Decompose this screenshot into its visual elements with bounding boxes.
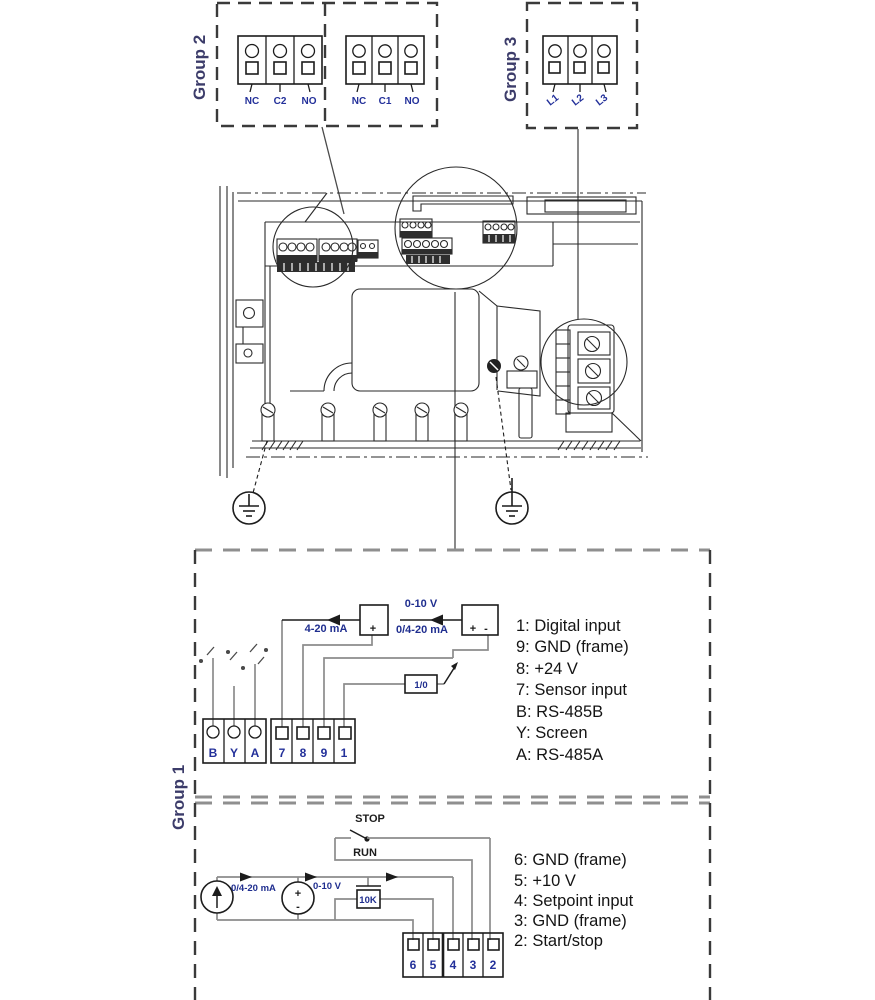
legend-item: 5: +10 V (514, 872, 576, 890)
stop-label: STOP (355, 813, 385, 825)
combo-range-label: 0/4-20 mA (396, 624, 448, 636)
legend-item: B: RS-485B (516, 703, 603, 721)
wiring-diagram: Group 2 NC C2 NO NC C1 NO Group 3 (0, 0, 875, 1000)
wiring-diagram-page: Group 2 NC C2 NO NC C1 NO Group 3 (0, 0, 875, 1000)
up-arrow-icon (212, 886, 222, 896)
terminal-9: 9 (321, 746, 328, 760)
relay-b-terminal-c1: C1 (379, 96, 392, 107)
relay-block-b: NC C1 NO (346, 36, 424, 107)
terminal-b: B (209, 746, 218, 760)
group3-label: Group 3 (501, 37, 520, 102)
plus-sign: + (295, 888, 301, 900)
mains-terminal-l1: L1 (545, 92, 561, 108)
potentiometer-symbol: 10K (356, 886, 381, 908)
terminal-7: 7 (279, 746, 286, 760)
relay-a-terminal-no: NO (302, 96, 317, 107)
relay-b-terminal-no: NO (405, 96, 420, 107)
mains-terminal-l2: L2 (570, 92, 586, 108)
bus-continuation-marks (200, 644, 268, 669)
legend-item: 3: GND (frame) (514, 912, 627, 930)
mains-terminal-l3: L3 (594, 92, 610, 108)
terminal-1: 1 (341, 746, 348, 760)
power-terminal-assembly (556, 325, 614, 432)
mains-block: L1 L2 L3 (543, 36, 617, 108)
legend-item: 7: Sensor input (516, 681, 627, 699)
relay-a-terminal-c2: C2 (274, 96, 287, 107)
highlight-circle-relays (273, 207, 353, 287)
terminal-8: 8 (300, 746, 307, 760)
arrow-right-icon (386, 873, 398, 882)
terminal-3: 3 (470, 958, 477, 972)
group2-label: Group 2 (190, 35, 209, 100)
current-signal-box: + 4-20 mA (282, 605, 388, 635)
terminal-strips (277, 219, 515, 272)
digital-input-switch: 1/0 (405, 662, 458, 693)
relay-a-terminal-nc: NC (245, 96, 259, 107)
terminal-6: 6 (410, 958, 417, 972)
legend-item: 4: Setpoint input (514, 892, 634, 910)
plus-sign: + (370, 623, 376, 635)
run-label: RUN (353, 847, 377, 859)
minus-sign: - (296, 901, 300, 913)
legend-lower: 6: GND (frame) 5: +10 V 4: Setpoint inpu… (514, 851, 634, 950)
ground-symbol-right (496, 377, 528, 524)
terminal-block-setpoint: 6 5 4 3 2 (403, 933, 503, 977)
legend-item: 2: Start/stop (514, 932, 603, 950)
terminal-block-io: 7 8 9 1 (271, 719, 355, 763)
ground-symbol-left (233, 441, 267, 524)
current-range-label: 0/4-20 mA (231, 883, 276, 894)
legend-item: 1: Digital input (516, 617, 621, 635)
legend-item: Y: Screen (516, 724, 588, 742)
terminal-5: 5 (430, 958, 437, 972)
group1-upper-box (195, 550, 710, 797)
group1-lower-content: STOP RUN (201, 813, 634, 977)
cable-glands (261, 403, 468, 441)
relay-block-a: NC C2 NO (238, 36, 322, 107)
legend-item: 6: GND (frame) (514, 851, 627, 869)
legend-item: 9: GND (frame) (516, 638, 629, 656)
switch-label: 1/0 (414, 680, 427, 691)
current-source-symbol: 0/4-20 mA (201, 881, 276, 913)
minus-sign: - (484, 623, 488, 635)
terminal-4: 4 (450, 958, 457, 972)
voltage-range-label: 0-10 V (313, 881, 342, 892)
pot-value-label: 10K (359, 895, 377, 906)
plus-sign: + (470, 623, 476, 635)
hatch-marks (262, 441, 620, 450)
terminal-block-comm: B Y A (203, 719, 266, 763)
voltage-source-symbol: + - 0-10 V (282, 881, 342, 914)
screws-and-glands (261, 356, 620, 450)
upper-wires (213, 620, 488, 727)
group1-label: Group 1 (169, 765, 188, 830)
switch-arrow-icon (451, 662, 458, 670)
enclosure-drawing (220, 167, 648, 478)
terminal-y: Y (230, 746, 238, 760)
relay-b-terminal-nc: NC (352, 96, 366, 107)
terminal-a: A (251, 746, 260, 760)
arrow-right-icon (240, 873, 252, 882)
current-range-label: 4-20 mA (305, 623, 348, 635)
combo-signal-box: + - 0-10 V 0/4-20 mA (396, 598, 498, 636)
voltage-range-label: 0-10 V (405, 598, 438, 610)
legend-upper: 1: Digital input 9: GND (frame) 8: +24 V… (516, 617, 629, 764)
start-stop-switch: STOP RUN (335, 813, 490, 859)
terminal-2: 2 (490, 958, 497, 972)
group1-upper-content: + 4-20 mA + - 0-10 V 0/4-20 mA 1/0 (200, 598, 629, 764)
legend-item: A: RS-485A (516, 746, 603, 764)
legend-item: 8: +24 V (516, 660, 578, 678)
